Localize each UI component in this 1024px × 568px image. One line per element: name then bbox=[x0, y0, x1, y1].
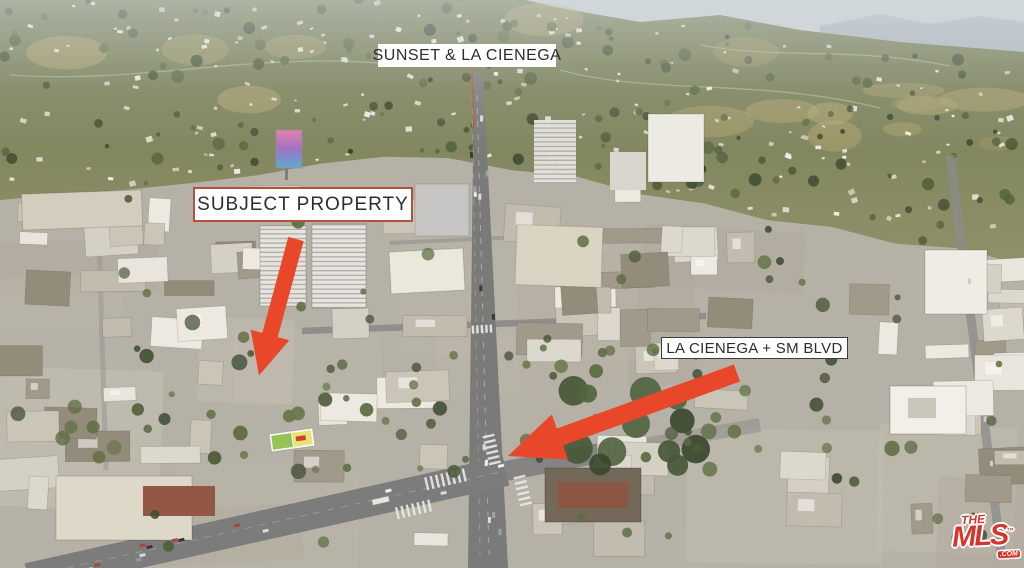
mls-text: MLS bbox=[951, 519, 1008, 554]
aerial-scene bbox=[0, 0, 1024, 568]
subject-property-label: SUBJECT PROPERTY bbox=[193, 187, 413, 222]
sunset-la-cienega-label: SUNSET & LA CIENEGA bbox=[378, 44, 556, 67]
mls-trademark: ™ bbox=[1007, 528, 1014, 535]
mls-watermark: THE MLS™ .COM bbox=[950, 510, 1021, 563]
aerial-photo: SUNSET & LA CIENEGA SUBJECT PROPERTY LA … bbox=[0, 0, 1024, 568]
mls-com-text: .COM bbox=[997, 550, 1020, 558]
la-cienega-sm-blvd-label: LA CIENEGA + SM BLVD bbox=[661, 337, 848, 359]
mls-main-text: MLS™ bbox=[951, 518, 1015, 554]
haze-layer bbox=[0, 0, 1024, 568]
